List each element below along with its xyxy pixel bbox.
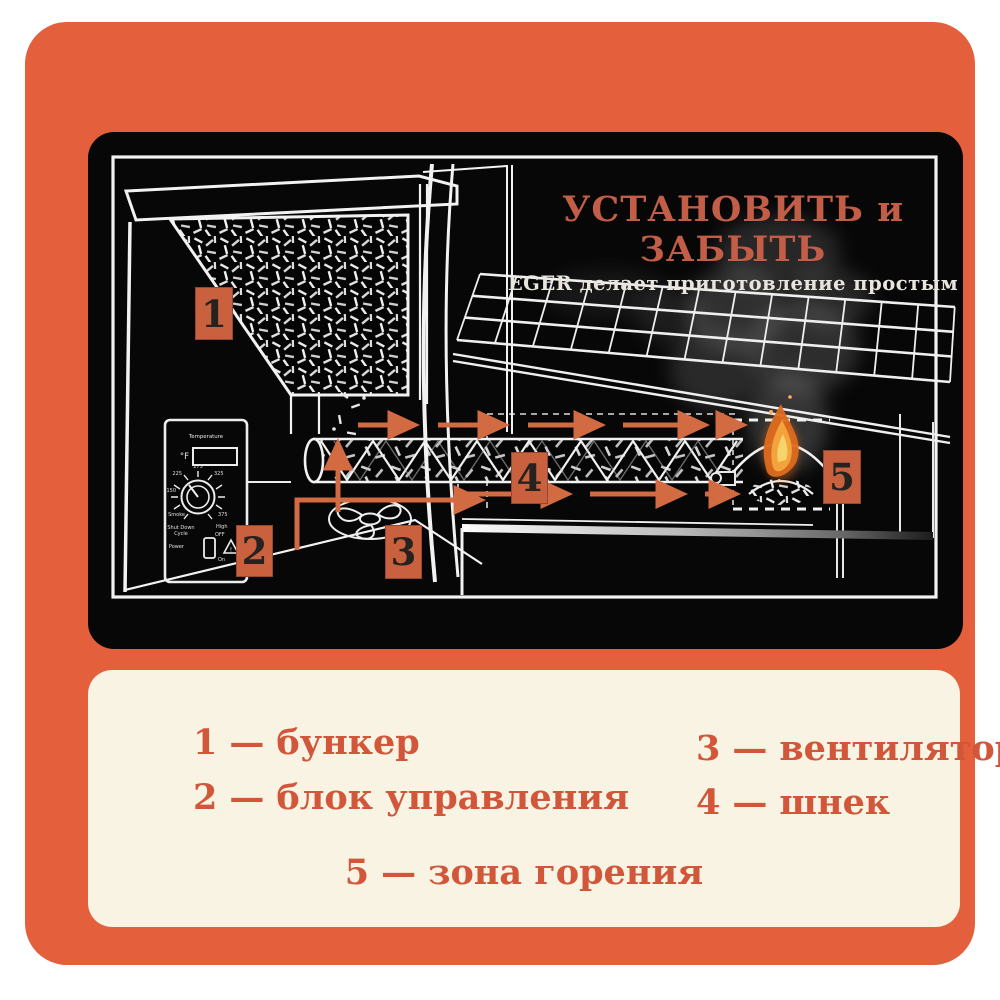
diagram-subtitle: EGER делает приготовление простым — [473, 273, 963, 295]
power-switch — [204, 538, 215, 558]
legend-dash: — — [229, 722, 264, 763]
legend-dash: — — [381, 852, 416, 893]
svg-text:On: On — [218, 557, 225, 563]
diagram-label-fan: 3 — [385, 525, 422, 579]
legend-panel: 1—бункер 2—блок управления 3—вентилятор … — [88, 670, 960, 927]
legend-item-auger: 4—шнек — [696, 782, 890, 823]
panel-unit-label: °F — [180, 452, 189, 462]
legend-item-hopper: 1—бункер — [193, 722, 420, 763]
svg-text:375: 375 — [218, 512, 228, 518]
front-hood-curve-2 — [446, 164, 458, 577]
svg-text:275: 275 — [193, 464, 203, 470]
auger-end-shaft — [711, 473, 721, 483]
metal-bar — [462, 524, 933, 540]
bar-highlight — [462, 519, 813, 525]
legend-text: шнек — [779, 782, 890, 823]
diagram-title-block: УСТАНОВИТЬ и ЗАБЫТЬ EGER делает приготов… — [473, 190, 963, 295]
panel-temperature-label: Temperature — [188, 434, 224, 440]
burn-pot-pellets — [749, 479, 813, 505]
legend-num: 1 — [193, 722, 217, 763]
legend-text: зона горения — [428, 852, 703, 893]
legend-dash: — — [732, 728, 767, 769]
diagram-label-auger: 4 — [511, 452, 548, 504]
legend-item-fan: 3—вентилятор — [696, 728, 1000, 769]
front-hood-curve — [424, 164, 435, 582]
diagram-label-burn-zone: 5 — [823, 450, 861, 504]
hopper-left-wall — [125, 222, 130, 592]
auger-tube-cap — [305, 439, 323, 482]
infographic-page: Temperature °F 275 225 325 150 — [0, 0, 1000, 1000]
grill-diagram-panel: Temperature °F 275 225 325 150 — [88, 132, 963, 649]
diagram-label-hopper: 1 — [195, 287, 233, 340]
warning-exclamation: ! — [230, 547, 232, 554]
orange-card: Temperature °F 275 225 325 150 — [25, 22, 975, 965]
legend-item-burn-zone: 5—зона горения — [88, 852, 960, 893]
svg-text:Power: Power — [169, 544, 185, 550]
svg-text:Smoke: Smoke — [168, 512, 185, 518]
legend-num: 3 — [696, 728, 720, 769]
base-bar-group — [462, 519, 933, 595]
diagram-label-control-unit: 2 — [236, 525, 273, 577]
legend-dash: — — [229, 777, 264, 818]
hopper-chute — [291, 395, 319, 434]
svg-text:High: High — [216, 524, 228, 530]
svg-text:225: 225 — [172, 471, 182, 477]
legend-text: вентилятор — [779, 728, 1000, 769]
legend-num: 4 — [696, 782, 720, 823]
legend-text: бункер — [276, 722, 419, 763]
svg-text:OFF: OFF — [215, 532, 225, 538]
hopper-lid — [126, 176, 457, 220]
legend-item-control-unit: 2—блок управления — [193, 777, 629, 818]
svg-text:Cycle: Cycle — [174, 531, 188, 537]
legend-num: 5 — [345, 852, 369, 893]
legend-num: 2 — [193, 777, 217, 818]
legend-text: блок управления — [276, 777, 629, 818]
diagram-title: УСТАНОВИТЬ и ЗАБЫТЬ — [473, 190, 963, 271]
svg-text:325: 325 — [214, 471, 224, 477]
svg-text:150: 150 — [166, 488, 176, 494]
panel-display — [193, 448, 237, 465]
hood-top-edge — [423, 166, 507, 172]
legend-dash: — — [732, 782, 767, 823]
